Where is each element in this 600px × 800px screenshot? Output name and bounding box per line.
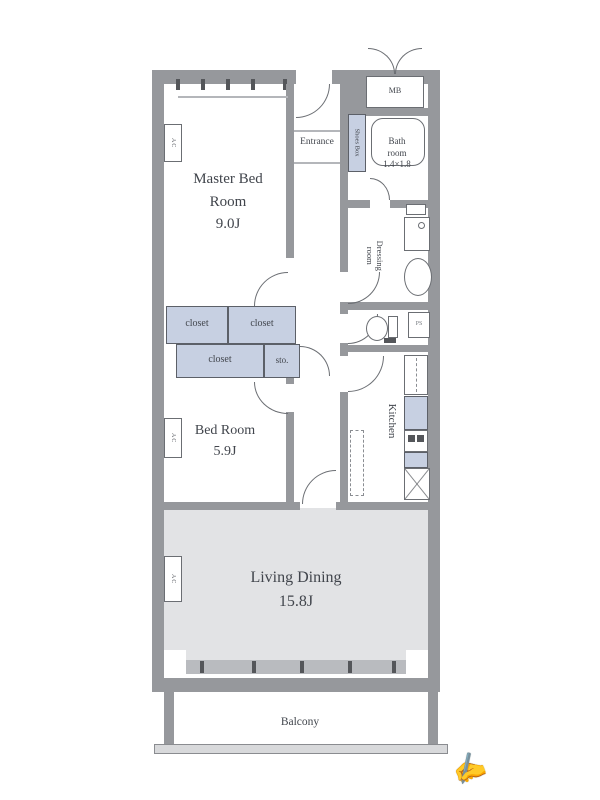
door-arc [348,272,380,304]
door-arc [370,178,390,200]
window-line [178,96,288,98]
door-arc [348,356,384,392]
balcony-railing [154,744,448,754]
bathroom-label: Bath room 1.4×1.8 [368,136,426,171]
burner [417,435,424,442]
refrigerator-space [404,355,428,395]
bedroom-label: Bed Room 5.9J [175,420,275,462]
toilet-mark [384,338,396,343]
wall-segment [152,70,164,692]
wall-segment [164,502,300,510]
closet-label: closet [176,354,264,365]
front-door-arc [296,84,330,118]
cursor-icon: ✍ [447,747,491,790]
ac-unit-box: AC [164,556,182,602]
bedroom-name: Bed Room [195,423,255,438]
wall-notch [164,650,186,676]
shoes-box-label: Shoes Box [354,115,361,171]
counter-dashed-outline [350,430,364,496]
window-tick [201,79,205,90]
window-tick [251,79,255,90]
meter-box-label: MB [366,86,424,95]
window-tick [348,661,352,673]
wall-segment [346,302,440,310]
bathroom-label-line1: Bath [368,136,426,148]
entrance-label: Entrance [292,137,342,147]
window-tick [300,661,304,673]
closet-label: closet [228,318,296,329]
kitchen-counter [404,452,428,468]
burner [408,435,415,442]
window-tick [226,79,230,90]
master-bedroom-area: 9.0J [178,213,278,236]
window-tick [200,661,204,673]
wall-segment [346,345,440,352]
bathroom-dimensions: 1.4×1.8 [368,159,426,171]
balcony-wall [428,692,438,744]
window-tick [392,661,396,673]
faucet-box [406,204,426,215]
toilet-tank [388,316,398,338]
door-arc [395,48,422,74]
balcony-label: Balcony [240,716,360,728]
living-dining-area: 15.8J [216,590,376,614]
storage-label: sto. [264,355,300,365]
living-dining-name: Living Dining [250,569,341,586]
wall-segment [152,678,440,692]
ac-label: AC [170,574,176,584]
front-door-opening [296,70,332,84]
wall-segment [286,412,294,508]
door-arc [368,48,395,74]
wall-notch [406,650,428,676]
stove [404,430,428,452]
ac-label: AC [170,433,176,443]
ac-unit-box: AC [164,124,182,162]
wall-segment [286,84,294,258]
living-dining-label: Living Dining 15.8J [216,566,376,614]
washing-machine-knob [418,222,425,229]
master-bedroom-name: Master Bed Room [193,171,263,210]
service-space [404,468,430,500]
wall-segment [336,502,440,510]
wall-segment [340,392,348,508]
kitchen-label: Kitchen [386,398,398,444]
bathroom-label-line2: room [368,148,426,160]
window-tick [176,79,180,90]
floorplan-canvas: MB Entrance Shoes Box Bath room 1.4×1.8 … [0,0,600,800]
door-arc [300,346,330,376]
balcony-wall [164,692,174,744]
door-arc [302,470,336,504]
pipe-space-label: PS [408,321,430,327]
master-bedroom-label: Master Bed Room 9.0J [178,168,278,236]
washbasin [404,258,432,296]
ac-unit-box: AC [164,418,182,458]
kitchen-counter [404,396,428,430]
washing-machine [404,217,430,251]
refrigerator-door-line [416,358,417,392]
entrance-step-line [294,162,340,164]
bedroom-area: 5.9J [175,441,275,462]
ac-label: AC [170,138,176,148]
bath-door-opening [370,200,390,208]
wall-segment [428,70,440,692]
door-arc [254,382,288,414]
entrance-step-line [294,130,340,132]
door-arc [254,272,288,306]
closet-label: closet [166,318,228,329]
window-tick [252,661,256,673]
